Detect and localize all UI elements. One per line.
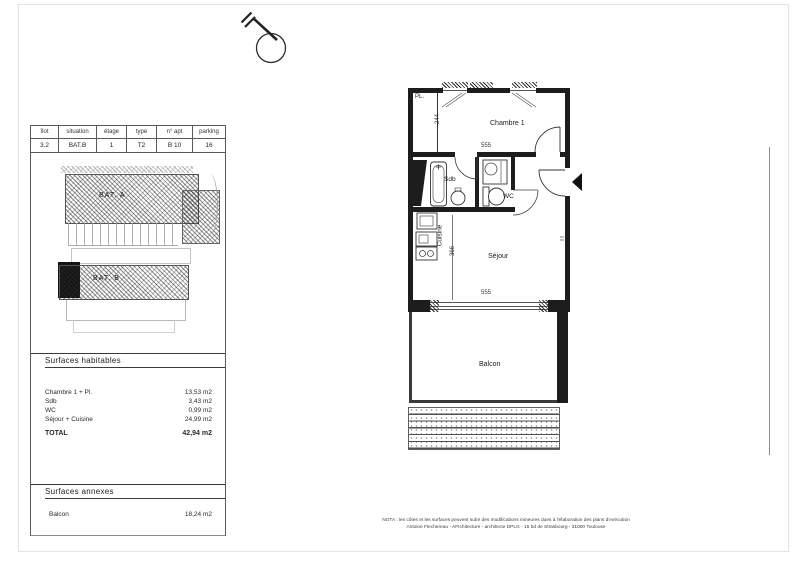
site-boundary-curve: [191, 174, 218, 236]
bay-window-line-2: [430, 306, 548, 307]
terrace-texture-rows: [408, 407, 560, 450]
info-panel: îlot situation étage type n° apt parking…: [30, 125, 226, 536]
chambre-door-swing: [535, 127, 560, 152]
row-sejour-value: 24,99 m2: [185, 416, 212, 423]
bathtub-inner: [433, 166, 444, 203]
stove-burner-1: [420, 251, 426, 257]
apartment-floor-plan: PL. Chambre 1 Sdb WC Cuisine Séjour Balc…: [400, 80, 600, 470]
bay-window-line-1: [430, 302, 548, 303]
window-2-glazing: [510, 90, 536, 91]
partition-wc-hall: [511, 157, 515, 190]
shutter-box-1: [442, 82, 468, 88]
sdb-label: Sdb: [444, 176, 456, 183]
partition-chambre-c: [560, 152, 565, 157]
dim-chambre-height: 244: [435, 108, 441, 130]
bat-b-building: [59, 265, 189, 300]
kitchen-sink: [420, 216, 433, 226]
shutter-box-3: [512, 82, 537, 88]
val-situation: BAT.B: [59, 139, 97, 152]
bay-end-block-right: [539, 300, 548, 312]
radiator-mark: [560, 237, 564, 240]
bat-b-label: BAT. B: [93, 275, 120, 282]
row-sdb-label: Sdb: [45, 398, 57, 405]
site-road-strip: [61, 166, 193, 173]
info-table-value-row: 3.2 BAT.B 1 T2 B 10 16: [31, 139, 225, 152]
row-wc-label: WC: [45, 407, 56, 414]
dim-chambre-width: 555: [481, 143, 491, 149]
window-1-casement-lines: [442, 93, 466, 107]
partition-sdb-sejour: [413, 207, 515, 212]
sdb-sink-tap: [455, 188, 461, 191]
balcony-wall-left: [409, 312, 412, 403]
row-wc-value: 0,99 m2: [189, 407, 213, 414]
wc-vanity: [483, 160, 507, 184]
bathtub-faucet: [436, 165, 441, 170]
balcony-wall-right: [557, 312, 568, 403]
nota-line-1: NOTA : les côtes et les surfaces peuvent…: [340, 517, 672, 524]
dim-sejour-height: 366: [450, 240, 456, 262]
col-etage: étage: [97, 126, 127, 138]
wall-right-lower: [565, 196, 570, 312]
wc-label: WC: [503, 193, 514, 200]
sdb-door-swing: [455, 157, 477, 179]
row-balcon-value: 18,24 m2: [185, 511, 212, 518]
col-situation: situation: [59, 126, 97, 138]
apartment-info-table: îlot situation étage type n° apt parking…: [31, 125, 225, 153]
row-sdb-value: 3,43 m2: [189, 398, 213, 405]
row-balcon-label: Balcon: [49, 511, 69, 518]
wall-bottom-left: [408, 300, 430, 312]
wall-top: [408, 88, 570, 93]
partition-chambre-a: [413, 152, 455, 157]
col-type: type: [127, 126, 157, 138]
nota-line-2: Antoine Flechereau - AFIchitecture - arc…: [340, 524, 672, 531]
val-parking: 16: [193, 139, 225, 152]
balcony-railing-bottom: [409, 400, 559, 403]
kitchen-unit-2: [416, 232, 437, 246]
duct-shaft: [413, 160, 427, 206]
wall-left: [408, 88, 413, 312]
total-value: 42,94 m2: [182, 430, 212, 437]
site-plan-sketch: BAT. A BAT. B: [41, 160, 217, 350]
wc-sink: [485, 163, 497, 175]
val-apt: B 10: [157, 139, 193, 152]
window-2-casement-lines: [512, 93, 536, 107]
partition-sdb-wc: [475, 157, 479, 207]
bay-end-block-left: [430, 300, 439, 312]
nota-footer: NOTA : les côtes et les surfaces peuvent…: [340, 517, 672, 531]
entry-arrow-icon: [572, 173, 582, 191]
row-sejour-label: Séjour + Cuisine: [45, 416, 93, 423]
val-etage: 1: [97, 139, 127, 152]
info-table-header-row: îlot situation étage type n° apt parking: [31, 126, 225, 139]
shutter-box-2: [470, 82, 493, 88]
surfaces-habitables-underline: [45, 367, 225, 368]
bat-b-terraces: [66, 300, 186, 321]
balcon-label: Balcon: [479, 361, 500, 368]
surfaces-habitables-top-rule: [31, 353, 225, 354]
row-chambre-label: Chambre 1 + Pl.: [45, 389, 92, 396]
stove-burner-2: [428, 251, 434, 257]
wall-right-upper: [565, 88, 570, 168]
cuisine-label: Cuisine: [437, 219, 444, 253]
scanned-floor-plan-sheet: îlot situation étage type n° apt parking…: [0, 0, 799, 565]
total-label: TOTAL: [45, 430, 68, 437]
bat-a-label: BAT. A: [99, 192, 126, 199]
kitchen-stove: [416, 247, 437, 260]
col-apt: n° apt: [157, 126, 193, 138]
toilet-tank: [483, 187, 489, 206]
kitchen-unit-1: [417, 213, 437, 229]
val-type: T2: [127, 139, 157, 152]
surfaces-annexes-title: Surfaces annexes: [45, 487, 114, 496]
col-parking: parking: [193, 126, 225, 138]
north-arrow-icon: [240, 12, 300, 72]
kitchen-unit-2-detail: [419, 235, 428, 243]
bat-a-building: [65, 174, 199, 224]
window-1-glazing: [443, 90, 467, 91]
bay-window-line-3: [430, 309, 548, 310]
wall-bottom-right: [548, 300, 570, 312]
chambre-label: Chambre 1: [490, 120, 525, 127]
bathtub: [431, 162, 447, 206]
val-ilot: 3.2: [31, 139, 59, 152]
sdb-sink: [451, 191, 465, 205]
col-ilot: îlot: [31, 126, 59, 138]
site-misc-block: [71, 248, 191, 264]
surfaces-annexes-top-rule: [31, 484, 225, 485]
bat-a-balconies: [68, 223, 178, 246]
right-margin-line: [769, 147, 770, 455]
wc-door-swing: [513, 190, 538, 215]
surfaces-habitables-title: Surfaces habitables: [45, 356, 121, 365]
bat-b-gardens: [73, 320, 175, 333]
row-chambre-value: 13,53 m2: [185, 389, 212, 396]
sejour-label: Séjour: [488, 253, 508, 260]
placard-label: PL.: [415, 94, 424, 100]
surfaces-annexes-underline: [45, 498, 225, 499]
dim-sejour-width: 555: [481, 290, 491, 296]
entry-door-swing: [539, 170, 565, 196]
partition-chambre-b: [477, 152, 536, 157]
